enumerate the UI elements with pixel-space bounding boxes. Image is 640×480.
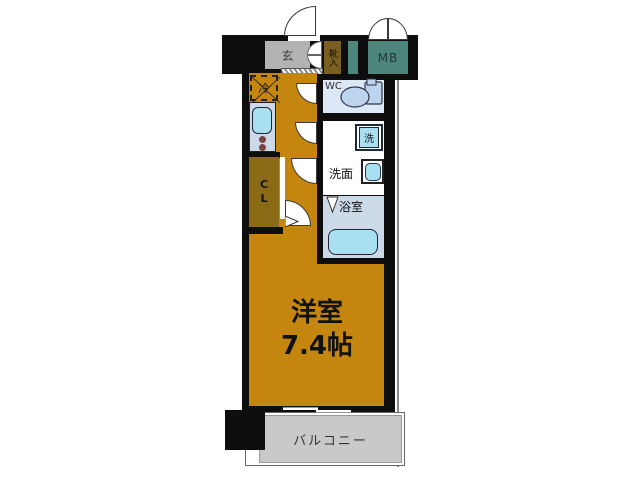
wall-bath-bottom	[317, 258, 395, 264]
meter-box: MB	[368, 41, 408, 74]
closet-label-c: C	[260, 178, 268, 192]
meterbox-door-right-arc-icon	[388, 18, 408, 40]
toilet-icon	[340, 78, 386, 114]
window-sliding-pane-2	[316, 410, 351, 413]
wall-left	[242, 73, 249, 413]
wall-right	[384, 74, 395, 413]
wall-wc-bottom	[317, 113, 384, 121]
balcony-label: バルコニー	[293, 430, 368, 449]
meter-box-label: MB	[378, 51, 399, 65]
main-room-size: 7.4帖	[250, 330, 384, 363]
shoe-box-label: 靴入	[326, 49, 339, 67]
room-genkan: 玄	[265, 41, 310, 69]
entrance-door-arc-icon	[284, 6, 316, 36]
window-sliding-pane-1	[283, 407, 318, 410]
closet: C L	[249, 157, 279, 227]
bath-label: 浴室	[339, 198, 363, 215]
genkan-label: 玄	[281, 47, 293, 64]
vanity-label: 洗面	[329, 165, 353, 182]
fridge-label: 冷	[259, 80, 270, 96]
main-room-label: 洋室 7.4帖	[250, 297, 384, 362]
pipe-shaft-strip	[348, 41, 358, 74]
basin-bowl	[365, 163, 381, 181]
vanity-basin-icon	[361, 159, 384, 184]
main-room-door-leaf-icon	[285, 216, 300, 228]
fridge-space: 冷	[250, 75, 278, 101]
bath-folding-door-icon	[325, 196, 341, 214]
main-room-name: 洋室	[250, 297, 384, 330]
outer-boundary-line	[397, 80, 399, 467]
stove-burner-icon	[259, 144, 266, 151]
washer-inner: 洗	[359, 127, 379, 148]
washer-label: 洗	[364, 130, 374, 145]
room-balcony: バルコニー	[259, 415, 402, 463]
closet-label-l: L	[260, 192, 267, 206]
shoe-box: 靴入	[324, 41, 341, 74]
structural-block-bottom-left	[225, 410, 265, 450]
washing-machine-space: 洗	[355, 124, 383, 151]
kitchen-sink-icon	[252, 107, 272, 134]
meterbox-door-left-arc-icon	[368, 18, 388, 40]
bathtub-icon	[328, 229, 378, 255]
stove-burner-icon	[259, 136, 266, 143]
wall-closet-bottom	[242, 227, 283, 234]
floor-plan: 玄 靴入 MB 冷 C L WC	[0, 0, 640, 480]
